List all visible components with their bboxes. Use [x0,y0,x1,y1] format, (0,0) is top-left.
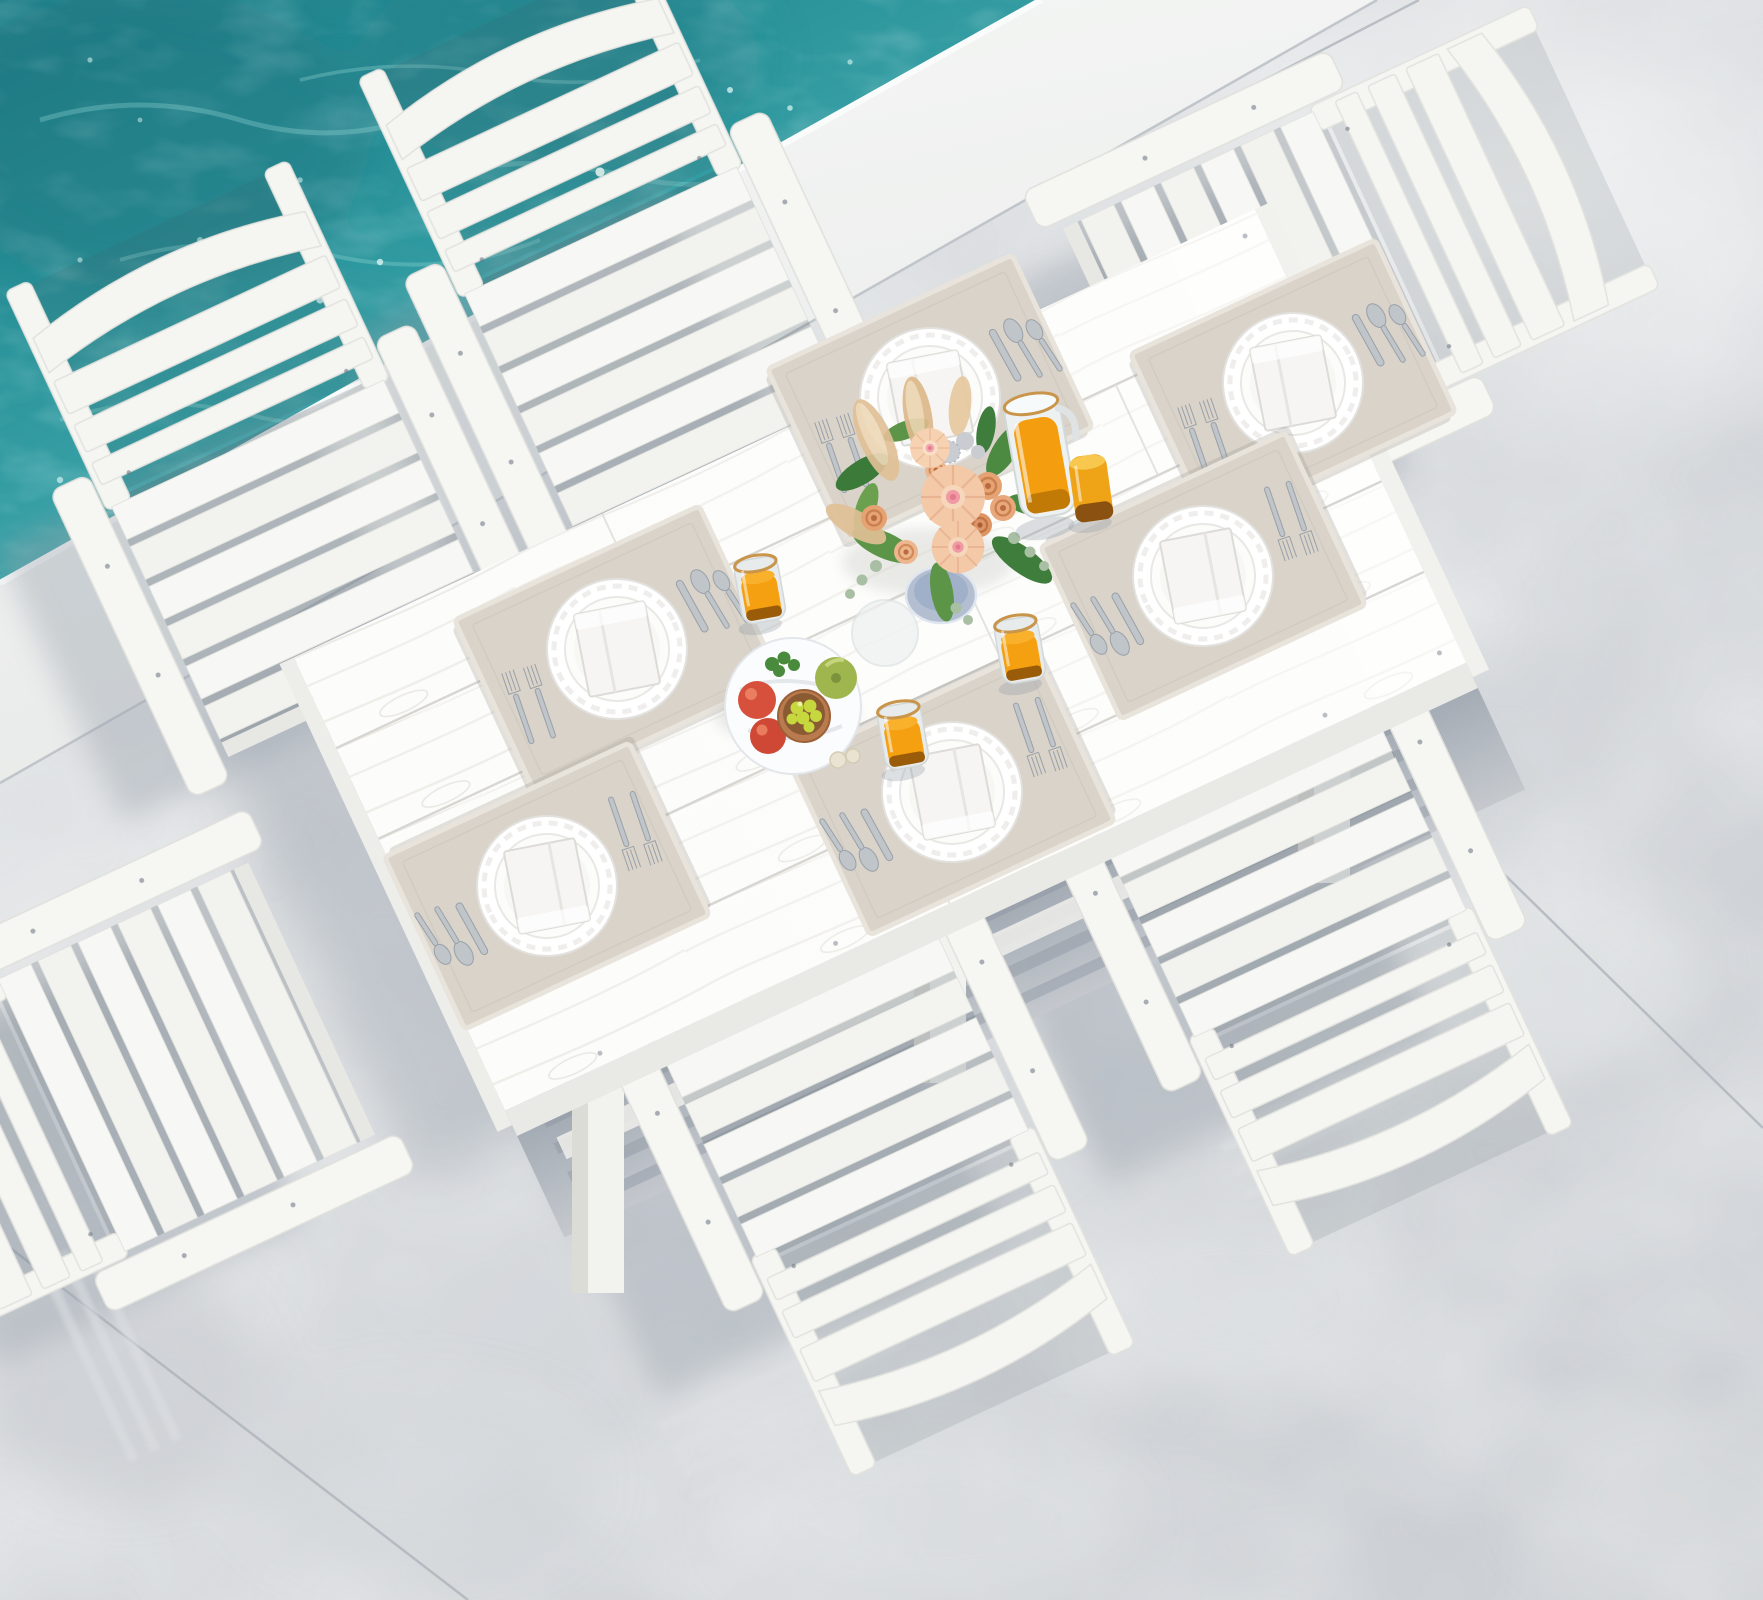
grape-bowl [778,690,830,742]
glass-coaster [852,600,918,666]
poolside-dining-photo [0,0,1763,1600]
red-apple [738,681,776,719]
scene-canvas [0,0,1763,1600]
